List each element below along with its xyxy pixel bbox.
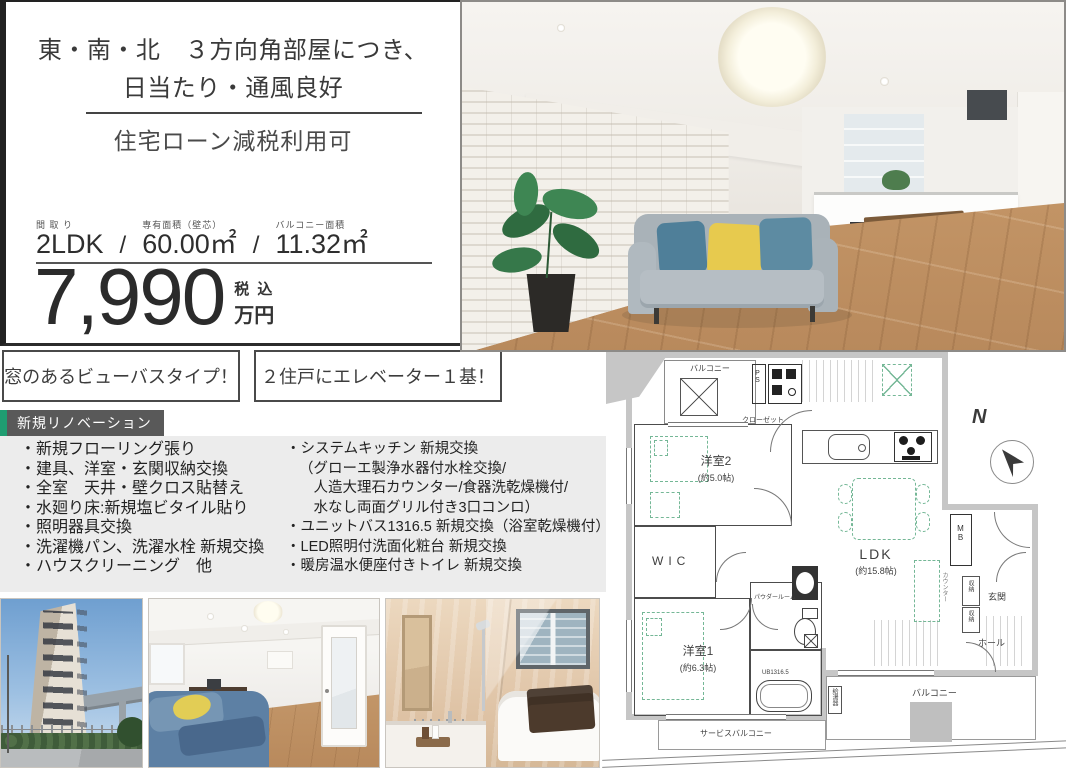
subheadline: 住宅ローン減税利用可	[6, 122, 460, 156]
balcony-partition	[910, 702, 952, 742]
pillow-plan-room2	[654, 440, 668, 456]
window-room2-top	[668, 422, 748, 427]
toiletry-bottle	[432, 725, 439, 739]
renovation-list-right: ・システムキッチン 新規交換 （グローエ製浄水器付水栓交換/ 人造大理石カウンタ…	[286, 440, 608, 577]
ceiling-hatch	[802, 360, 878, 402]
wall-niche	[267, 651, 293, 669]
sofa-leg	[654, 308, 659, 324]
badge-elevator: ２住戸にエレベーター１基！	[254, 350, 502, 402]
label-service-balcony: サービスバルコニー	[700, 728, 772, 739]
range-hood	[967, 90, 1007, 120]
renovation-tag: 新規リノベーション	[0, 410, 164, 436]
ceiling-light	[717, 7, 827, 107]
shower-bar	[482, 627, 485, 711]
renovation-item: ・建具、洋室・玄関収納交換	[20, 460, 286, 480]
utility-pole	[7, 655, 9, 753]
room1-name: 洋室1	[650, 642, 746, 659]
ps-small-box	[804, 634, 818, 648]
real-estate-flyer: { "info": { "headline_line1": "東・南・北 ３方向…	[0, 0, 1066, 768]
compass-n-label: N	[972, 406, 986, 429]
stove-burner	[772, 369, 782, 379]
floor-plan: バルコニー PS クローゼット MB 収納 収納 カウンター	[606, 352, 1066, 768]
bathtub-plan	[756, 680, 812, 712]
renovation-item: ・ユニットバス1316.5 新規交換（浴室乾燥機付）	[286, 518, 608, 538]
stove-knob	[788, 388, 796, 396]
sofa-seat	[640, 270, 824, 308]
renovation-item: ・システムキッチン 新規交換	[286, 440, 608, 460]
badge-view-bath: 窓のあるビューバスタイプ！	[2, 350, 240, 402]
renovation-item: ・ハウスクリーニング 他	[20, 557, 286, 577]
wall-right-upper	[942, 352, 948, 510]
door-frosted-panel	[331, 637, 357, 729]
door-knob	[325, 689, 329, 693]
wall-annex-top	[942, 504, 1038, 510]
spot-light	[241, 625, 248, 632]
label-storage-2: 収納	[966, 610, 975, 622]
renovation-item: ・LED照明付洗面化粧台 新規交換	[286, 538, 608, 558]
renovation-item: ・新規フローリング張り	[20, 440, 286, 460]
window-room1-left	[626, 620, 632, 692]
renovation-item: ・暖房温水便座付きトイレ 新規交換	[286, 557, 608, 577]
room1-label: 洋室1 (約6.3帖)	[650, 642, 746, 674]
wall-annex-right	[1032, 504, 1038, 676]
spec-balcony: バルコニー面積 11.32㎡	[275, 218, 368, 258]
vent-box	[882, 364, 912, 396]
mirror	[402, 615, 432, 711]
wic-label: WIC	[652, 554, 690, 568]
spot-light	[557, 24, 565, 32]
toiletry-bottle	[422, 727, 429, 739]
tag-accent-bar	[0, 410, 7, 436]
room2-label: 洋室2 (約5.0帖)	[668, 452, 764, 484]
spec-separator: /	[253, 234, 260, 258]
room2-size: (約5.0帖)	[668, 471, 764, 484]
spot-light	[283, 629, 289, 635]
desk-plan-room2	[650, 492, 680, 518]
renovation-item: 人造大理石カウンター/食器洗乾燥機付/	[286, 479, 608, 499]
ceiling-light-round	[253, 601, 283, 623]
balcony-equipment-box	[680, 378, 718, 416]
photo-living-main	[460, 0, 1066, 352]
label-balcony-top: バルコニー	[690, 363, 730, 374]
photo-living-room	[148, 598, 380, 768]
spec-balcony-value: 11.32㎡	[275, 231, 368, 258]
road	[1, 749, 143, 768]
kitchen-window	[149, 643, 185, 685]
renovation-item: ・水廻り床:新規塩ビタイル貼り	[20, 499, 286, 519]
stove-burner	[916, 436, 925, 445]
spot-light	[207, 613, 214, 620]
dining-chair-plan	[916, 484, 930, 504]
ldk-label: LDK (約15.8帖)	[830, 546, 922, 577]
window-light	[486, 599, 600, 719]
sofa-cushion-teal-right	[759, 217, 813, 273]
renovation-item: ・照明器具交換	[20, 518, 286, 538]
ldk-size: (約15.8帖)	[830, 564, 922, 577]
dining-chair-plan	[838, 512, 852, 532]
stove-burner	[899, 436, 908, 445]
price-amount: 7,990	[34, 260, 224, 334]
dining-chair-plan	[838, 484, 852, 504]
headline-line1: 東・南・北 ３方向角部屋につき、	[6, 30, 460, 65]
compass-arrow	[991, 441, 1035, 485]
headline-divider	[86, 112, 422, 114]
price-unit: 万円	[234, 299, 274, 328]
tree	[117, 717, 143, 747]
tag-label: 新規リノベーション	[7, 410, 164, 436]
stove-burner	[907, 447, 915, 455]
photo-building-exterior	[0, 598, 143, 768]
sofa-cushion-teal-left	[656, 220, 708, 275]
photo-bathroom	[385, 598, 600, 768]
price-tax-note: 税 込	[234, 278, 274, 299]
stove-burner	[772, 385, 782, 395]
ldk-name: LDK	[830, 546, 922, 562]
label-hall: ホール	[978, 636, 1005, 649]
label-mb: MB	[956, 524, 965, 542]
label-ps: PS	[754, 370, 761, 384]
price-unit-block: 税 込 万円	[234, 278, 274, 328]
label-powder-room: パウダールーム	[754, 592, 796, 601]
label-balcony-bottom: バルコニー	[912, 686, 957, 699]
door-arc-wic	[716, 552, 746, 582]
label-counter: カウンター	[940, 572, 949, 602]
dining-chair-plan	[916, 512, 930, 532]
window-room2-left	[626, 448, 632, 504]
renovation-item: 水なし両面グリル付き3口コンロ）	[286, 499, 608, 519]
stove-burner	[786, 369, 796, 379]
kitchen-faucet	[858, 444, 866, 452]
kitchen-plant	[882, 170, 910, 190]
label-water-heater: 給湯器	[830, 688, 839, 706]
stove-grill	[902, 456, 920, 460]
renovation-item: ・洗濯機パン、洗濯水栓 新規交換	[20, 538, 286, 558]
label-genkan: 玄関	[988, 590, 1006, 603]
room1-size: (約6.3帖)	[650, 661, 746, 674]
headline-line2: 日当たり・通風良好	[6, 68, 460, 103]
wall-top	[626, 352, 948, 358]
counter-faucet	[448, 711, 452, 723]
renovation-item: （グローエ製浄水器付水栓交換/	[286, 460, 608, 480]
washbasin-bowl	[796, 572, 814, 594]
label-ub: UB1316.5	[762, 670, 789, 676]
compass-icon	[990, 440, 1034, 484]
sofa-leg	[810, 306, 815, 322]
price: 7,990 税 込 万円	[34, 260, 274, 334]
door-arc-genkan-closet	[996, 552, 1026, 582]
dining-table-plan	[852, 478, 916, 540]
label-storage-1: 収納	[966, 580, 975, 592]
pillow-plan-room1	[646, 618, 662, 636]
spot-light	[880, 77, 889, 86]
ceiling-hatch	[874, 620, 938, 666]
renovation-list-left: ・新規フローリング張り ・建具、洋室・玄関収納交換 ・全室 天井・壁クロス貼替え…	[20, 440, 286, 577]
room2-name: 洋室2	[668, 452, 764, 469]
renovation-item: ・全室 天井・壁クロス貼替え	[20, 479, 286, 499]
door-arc-genkan	[994, 512, 1030, 548]
info-panel: 東・南・北 ３方向角部屋につき、 日当たり・通風良好 住宅ローン減税利用可 間 …	[0, 0, 460, 346]
